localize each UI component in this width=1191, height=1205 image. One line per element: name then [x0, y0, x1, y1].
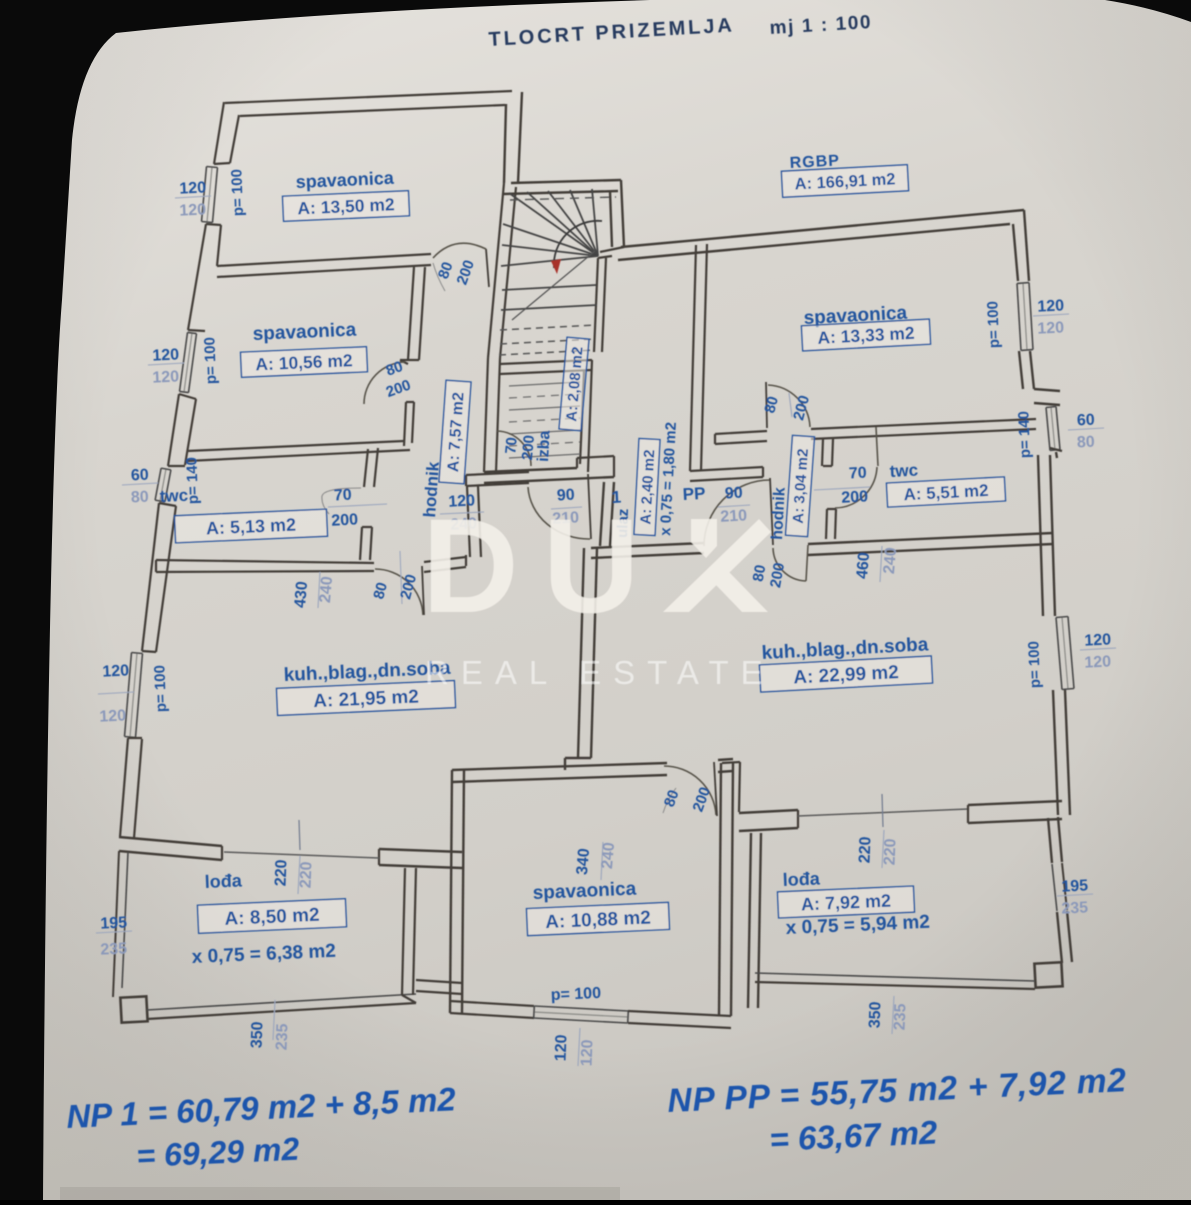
svg-text:120: 120: [102, 662, 130, 680]
svg-text:A: 7,92 m2: A: 7,92 m2: [801, 891, 892, 915]
svg-text:220: 220: [857, 836, 875, 863]
svg-text:340: 340: [574, 847, 593, 875]
svg-text:220: 220: [882, 838, 900, 865]
svg-text:p= 100: p= 100: [984, 301, 1003, 349]
svg-text:70: 70: [502, 437, 520, 455]
svg-text:120: 120: [179, 201, 207, 219]
svg-text:80: 80: [131, 489, 150, 507]
svg-text:90: 90: [724, 485, 743, 503]
svg-text:DU: DU: [422, 492, 664, 641]
svg-text:240: 240: [881, 546, 900, 574]
svg-text:120: 120: [152, 368, 180, 386]
svg-text:p= 100: p= 100: [1025, 641, 1044, 689]
svg-text:210: 210: [720, 507, 748, 525]
svg-text:460: 460: [854, 551, 873, 579]
svg-text:70: 70: [848, 465, 867, 483]
svg-text:80: 80: [1077, 434, 1096, 452]
svg-text:120: 120: [1084, 631, 1112, 649]
svg-text:70: 70: [333, 487, 352, 505]
svg-text:120: 120: [152, 346, 180, 364]
svg-text:240: 240: [599, 841, 618, 869]
svg-text:p= 140: p= 140: [183, 457, 202, 505]
svg-text:60: 60: [131, 467, 150, 485]
svg-text:235: 235: [892, 1003, 910, 1030]
svg-text:p= 100: p= 100: [550, 985, 601, 1004]
svg-text:A: 5,13 m2: A: 5,13 m2: [206, 515, 297, 539]
svg-text:60: 60: [1077, 412, 1096, 430]
svg-text:p= 100: p= 100: [228, 169, 247, 217]
svg-text:220: 220: [273, 859, 291, 886]
svg-text:120: 120: [1084, 653, 1112, 671]
svg-text:120: 120: [99, 707, 127, 725]
svg-text:350: 350: [249, 1021, 267, 1048]
svg-text:A: 8,50 m2: A: 8,50 m2: [224, 905, 320, 930]
svg-text:195: 195: [1061, 877, 1089, 895]
svg-text:twc: twc: [889, 461, 918, 481]
svg-text:120: 120: [1037, 319, 1065, 337]
svg-text:izba: izba: [535, 430, 554, 462]
svg-text:A: 13,50 m2: A: 13,50 m2: [297, 194, 395, 218]
svg-text:lođa: lođa: [782, 868, 821, 890]
svg-text:p= 100: p= 100: [201, 337, 220, 385]
svg-text:220: 220: [298, 861, 316, 888]
svg-text:120: 120: [179, 179, 207, 197]
svg-text:120: 120: [579, 1039, 597, 1066]
svg-text:240: 240: [317, 575, 336, 603]
svg-text:200: 200: [331, 511, 359, 529]
svg-text:REAL ESTATE: REAL ESTATE: [425, 654, 775, 691]
svg-text:120: 120: [553, 1034, 571, 1061]
svg-text:p= 140: p= 140: [1015, 411, 1034, 459]
svg-text:= 63,67 m2: = 63,67 m2: [769, 1113, 939, 1158]
svg-text:430: 430: [292, 580, 311, 608]
svg-text:120: 120: [1037, 297, 1065, 315]
svg-text:235: 235: [1061, 899, 1089, 917]
svg-text:195: 195: [100, 914, 128, 932]
svg-text:235: 235: [100, 940, 128, 958]
svg-text:p= 100: p= 100: [151, 665, 170, 713]
svg-text:350: 350: [867, 1001, 885, 1028]
svg-text:200: 200: [841, 488, 869, 506]
svg-text:lođa: lođa: [204, 870, 243, 892]
svg-text:80: 80: [750, 564, 770, 583]
svg-text:235: 235: [274, 1023, 292, 1050]
svg-text:= 69,29 m2: = 69,29 m2: [136, 1131, 300, 1174]
svg-text:200: 200: [519, 434, 538, 460]
svg-text:A: 10,56 m2: A: 10,56 m2: [255, 350, 353, 374]
svg-text:PP: PP: [682, 484, 706, 504]
